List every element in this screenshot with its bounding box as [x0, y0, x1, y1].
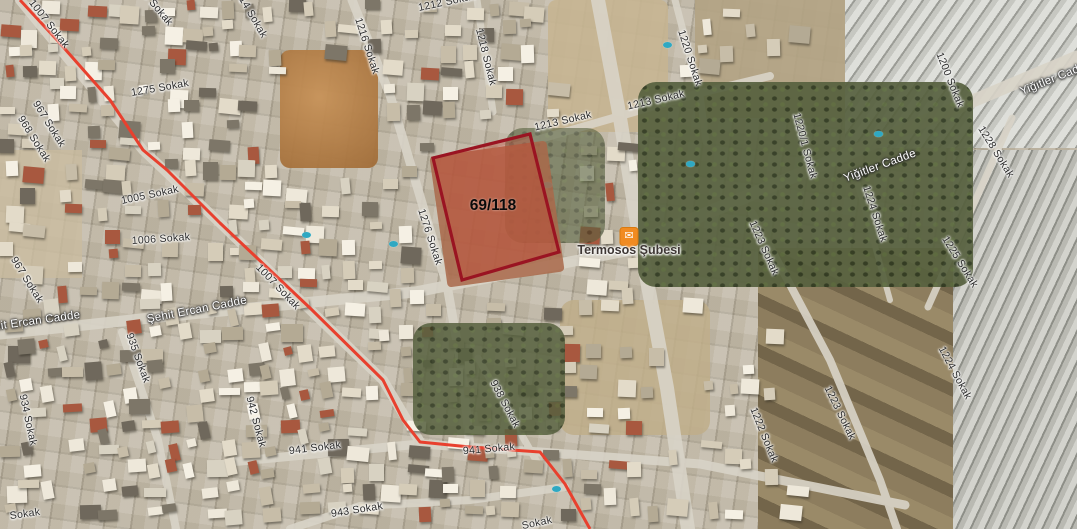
street-label: 1216 Sokak	[352, 16, 381, 75]
street-label: 1275 Sokak	[129, 0, 176, 28]
street-label: Yiğitler Cadde	[842, 147, 918, 184]
street-label: 1225 Sokak	[939, 234, 980, 290]
street-label: 1212 Sokak	[417, 0, 477, 14]
street-label: Sokak	[521, 514, 554, 529]
street-label: 1213 Sokak	[533, 109, 593, 134]
street-label: 942 Sokak	[243, 395, 268, 449]
street-label: 938 Sokak	[487, 378, 522, 430]
satellite-map[interactable]: 1007 Sokak1275 Sokak1214 Sokak1212 Sokak…	[0, 0, 1077, 529]
street-label: 1200 Sokak	[933, 51, 966, 110]
street-label: 1218 Sokak	[473, 27, 499, 87]
street-label: Şehit Ercan Cadde	[146, 294, 248, 325]
street-label: 1224 Sokak	[860, 184, 889, 243]
street-label: Sokak	[9, 506, 41, 522]
street-label: 1275 Sokak	[130, 77, 190, 99]
street-label: 1007 Sokak	[26, 0, 71, 51]
street-label: 943 Sokak	[330, 500, 384, 520]
street-label: Yiğitler Cadde	[1019, 58, 1077, 98]
street-label: 1224 Sokak	[936, 344, 974, 401]
street-label: 1223 Sokak	[822, 384, 858, 442]
street-label: 1220 Sokak	[675, 28, 704, 87]
street-label: 1223 Sokak	[747, 219, 782, 277]
poi-label: Termosos Şubesi	[577, 243, 680, 257]
street-label: 941 Sokak	[462, 441, 515, 458]
street-label: 1213 Sokak	[626, 88, 686, 113]
street-labels: 1007 Sokak1275 Sokak1214 Sokak1212 Sokak…	[0, 0, 1077, 529]
street-label: 1228 Sokak	[975, 124, 1016, 180]
parcel-number-label: 69/118	[470, 197, 517, 215]
street-label: 1276 Sokak	[415, 207, 444, 266]
street-label: Şehit Ercan Cadde	[0, 309, 81, 335]
street-label: 1220/1 Sokak	[790, 112, 819, 181]
street-label: 1214 Sokak	[230, 0, 270, 40]
street-label: 1222 Sokak	[747, 406, 780, 465]
envelope-icon: ✉	[624, 231, 633, 242]
street-label: 1006 Sokak	[131, 231, 190, 247]
street-label: 934 Sokak	[17, 393, 40, 447]
street-label: 935 Sokak	[123, 331, 152, 384]
street-label: 1007 Sokak	[253, 262, 302, 312]
street-label: 1005 Sokak	[120, 183, 180, 207]
street-label: 941 Sokak	[288, 439, 341, 457]
street-label: 967 Sokak	[8, 255, 46, 306]
